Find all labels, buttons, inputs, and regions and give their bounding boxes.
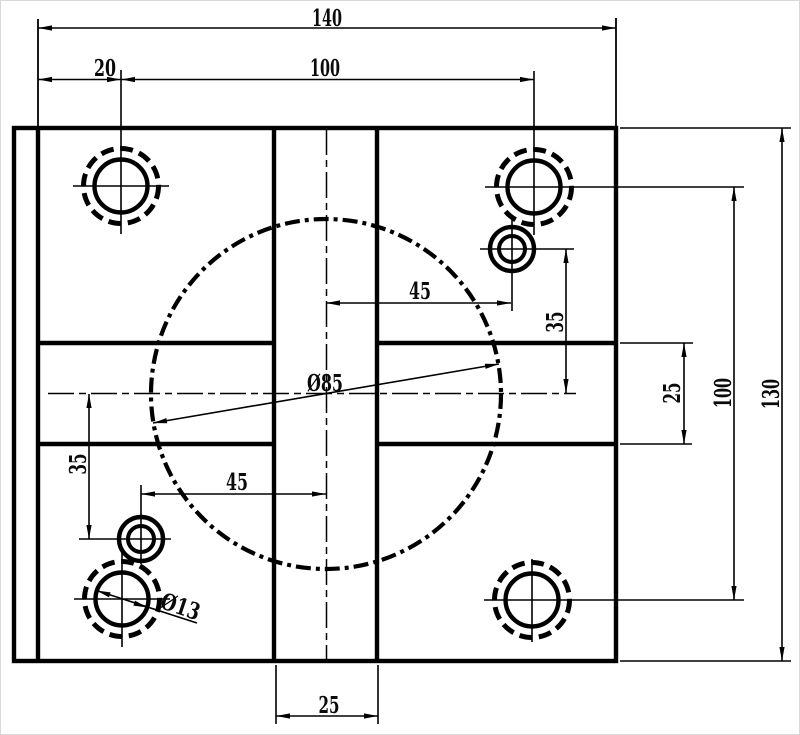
arrow-right [364, 713, 378, 718]
dim-corner-hole-offset-x: 20 [38, 55, 121, 82]
dim-text-small-hole-x-top: 45 [409, 278, 431, 305]
arrow-right [520, 77, 534, 82]
engineering-drawing: 140 20 100 130 100 25 45 [1, 1, 800, 735]
dim-text-channel-width-right: 25 [659, 383, 686, 404]
small-hole-top-right [480, 218, 574, 311]
dim-text-overall-height: 130 [758, 379, 785, 409]
arrow-bottom [681, 430, 686, 444]
small-hole-bottom-left [79, 485, 171, 564]
arrow-top [731, 187, 736, 201]
arrow-top [563, 249, 568, 263]
arrow-right [312, 491, 326, 496]
dim-small-hole-offset-y-top: 35 [542, 249, 569, 393]
dim-channel-width-bottom: 25 [276, 692, 378, 719]
arrow-left [141, 491, 155, 496]
dim-channel-width-right: 25 [659, 343, 687, 444]
dim-text-center-bore-diameter: Ø85 [307, 370, 343, 397]
dim-text-hole-pitch-y: 100 [710, 378, 737, 408]
arrow-left [38, 77, 52, 82]
dim-corner-hole-pitch-y: 100 [710, 187, 737, 600]
dim-text-hole-offset-x: 20 [94, 55, 116, 82]
corner-hole-top-left [73, 70, 169, 234]
dim-small-hole-offset-y-bottom: 35 [65, 394, 92, 539]
arrow-bottom [779, 647, 784, 661]
arrow-left [38, 25, 52, 30]
dim-text-corner-hole-diameter: Ø13 [157, 588, 204, 626]
arrow-left [121, 77, 135, 82]
dim-small-hole-offset-x-top: 45 [326, 278, 511, 306]
arrow-left [326, 300, 340, 305]
arrow-bottom [731, 586, 736, 600]
arrow-left [97, 591, 111, 598]
arrow-bottom [563, 379, 568, 393]
arrow-right [485, 364, 499, 369]
arrow-right [602, 25, 616, 30]
dim-text-hole-pitch-x: 100 [310, 55, 340, 82]
dim-text-channel-width-bottom: 25 [319, 692, 340, 719]
arrow-top [86, 394, 91, 408]
dim-text-small-hole-x-bottom: 45 [226, 469, 248, 496]
dim-overall-width: 140 [38, 5, 616, 32]
dim-overall-height: 130 [758, 128, 785, 661]
arrow-right [133, 601, 147, 608]
dim-corner-hole-pitch-x: 100 [121, 55, 534, 82]
dim-text-overall-width: 140 [312, 5, 342, 32]
engineering-drawing-canvas: 140 20 100 130 100 25 45 [0, 0, 800, 735]
arrow-top [681, 343, 686, 357]
arrow-bottom [86, 525, 91, 539]
arrow-top [779, 128, 784, 142]
dim-text-small-hole-y-bottom: 35 [65, 454, 92, 475]
arrow-right [497, 300, 511, 305]
arrow-left [276, 713, 290, 718]
dim-text-small-hole-y-top: 35 [542, 312, 569, 333]
